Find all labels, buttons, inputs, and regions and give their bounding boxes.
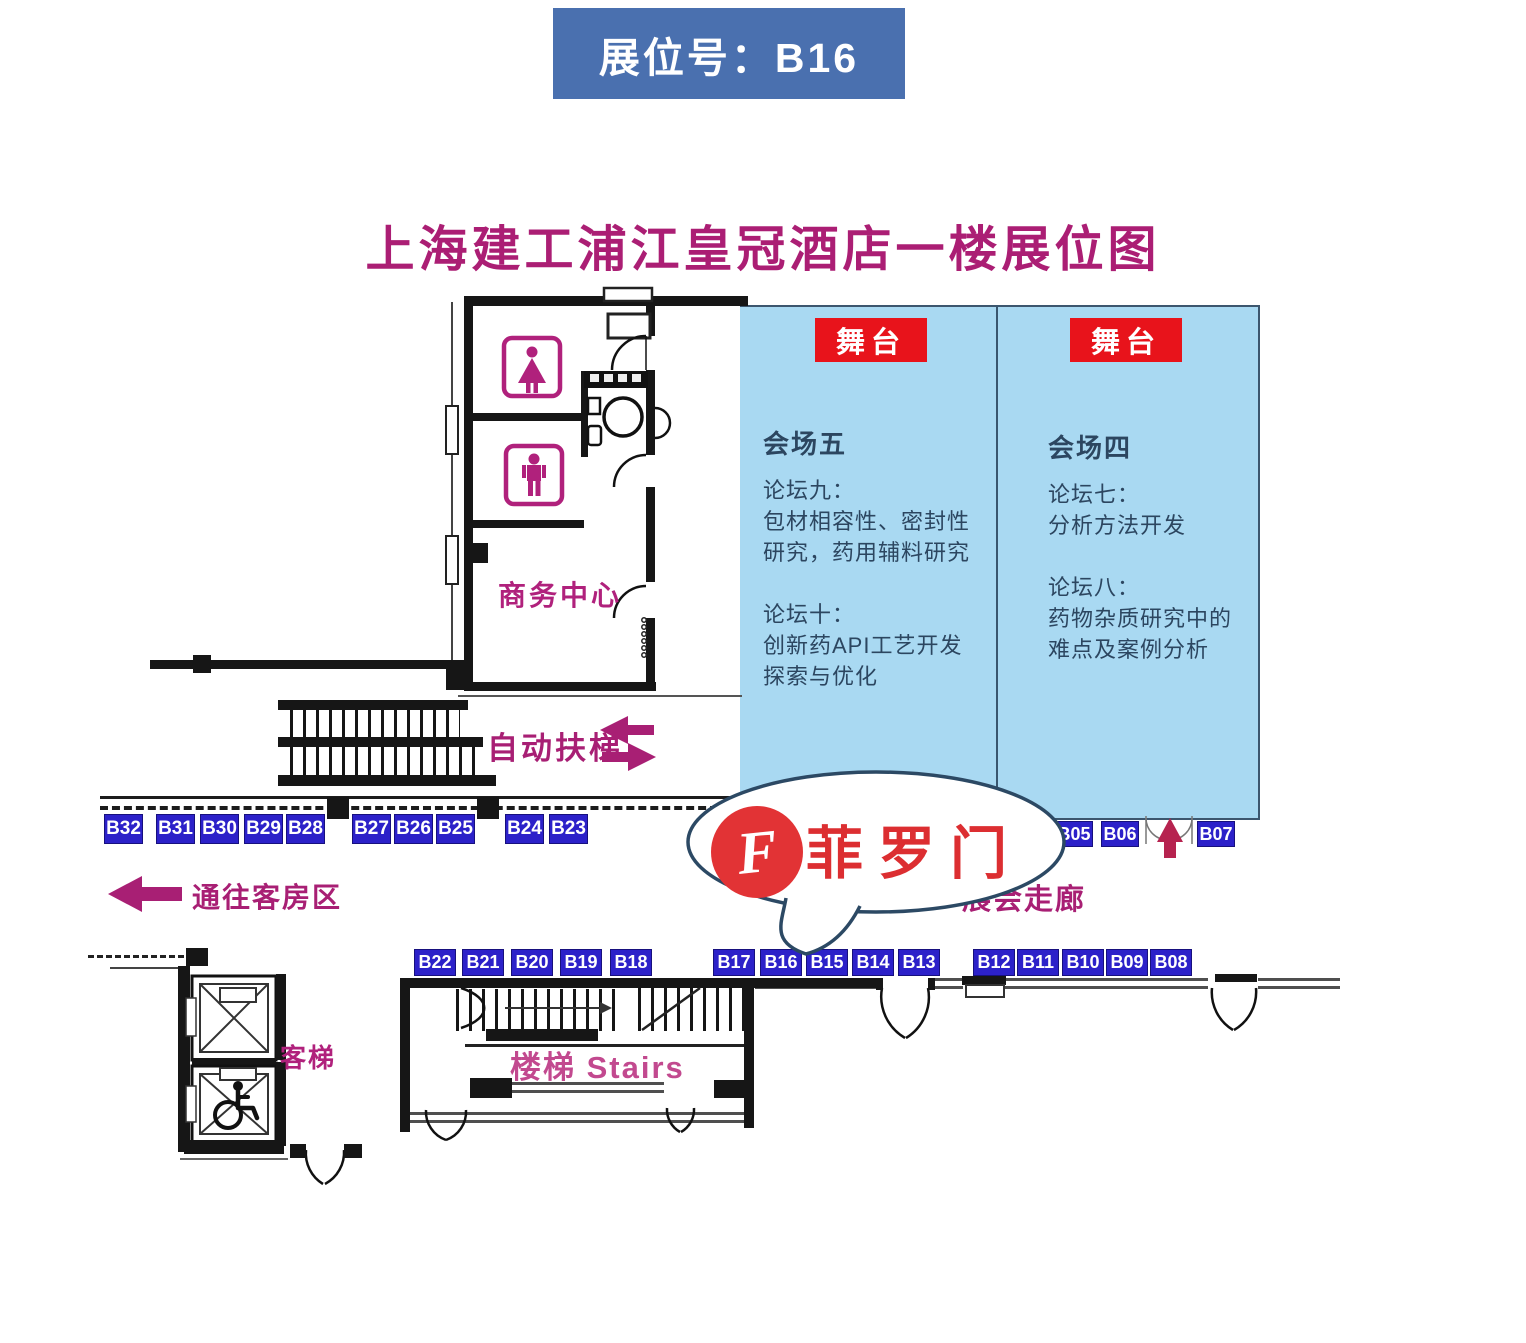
escalator-label: 自动扶梯 [487,723,623,768]
stairs-label: 楼梯 Stairs [510,1042,685,1087]
female-restroom-icon [504,338,560,396]
brand-name: 菲罗门 [806,808,1022,890]
door-arcs [306,336,1256,1184]
door-hardware-dots [642,618,646,657]
male-restroom-icon [506,446,562,504]
brand-logo-letter: F [734,820,780,884]
floor-plan-linework [0,0,1526,1343]
floor-plan-page: 展位号：B16 上海建工浦江皇冠酒店一楼展位图 舞台 舞台 会场五 论坛九： 包… [0,0,1526,1343]
hall-entry-up-arrow-icon [1157,818,1183,858]
wc-fixtures [584,371,648,445]
business-center-label: 商务中心 [498,574,622,614]
brand-logo: F [711,806,803,898]
elevator-label: 客梯 [280,1038,336,1075]
guest-rooms-arrow-icon [108,876,182,912]
to-guest-rooms-label: 通往客房区 [192,876,342,916]
